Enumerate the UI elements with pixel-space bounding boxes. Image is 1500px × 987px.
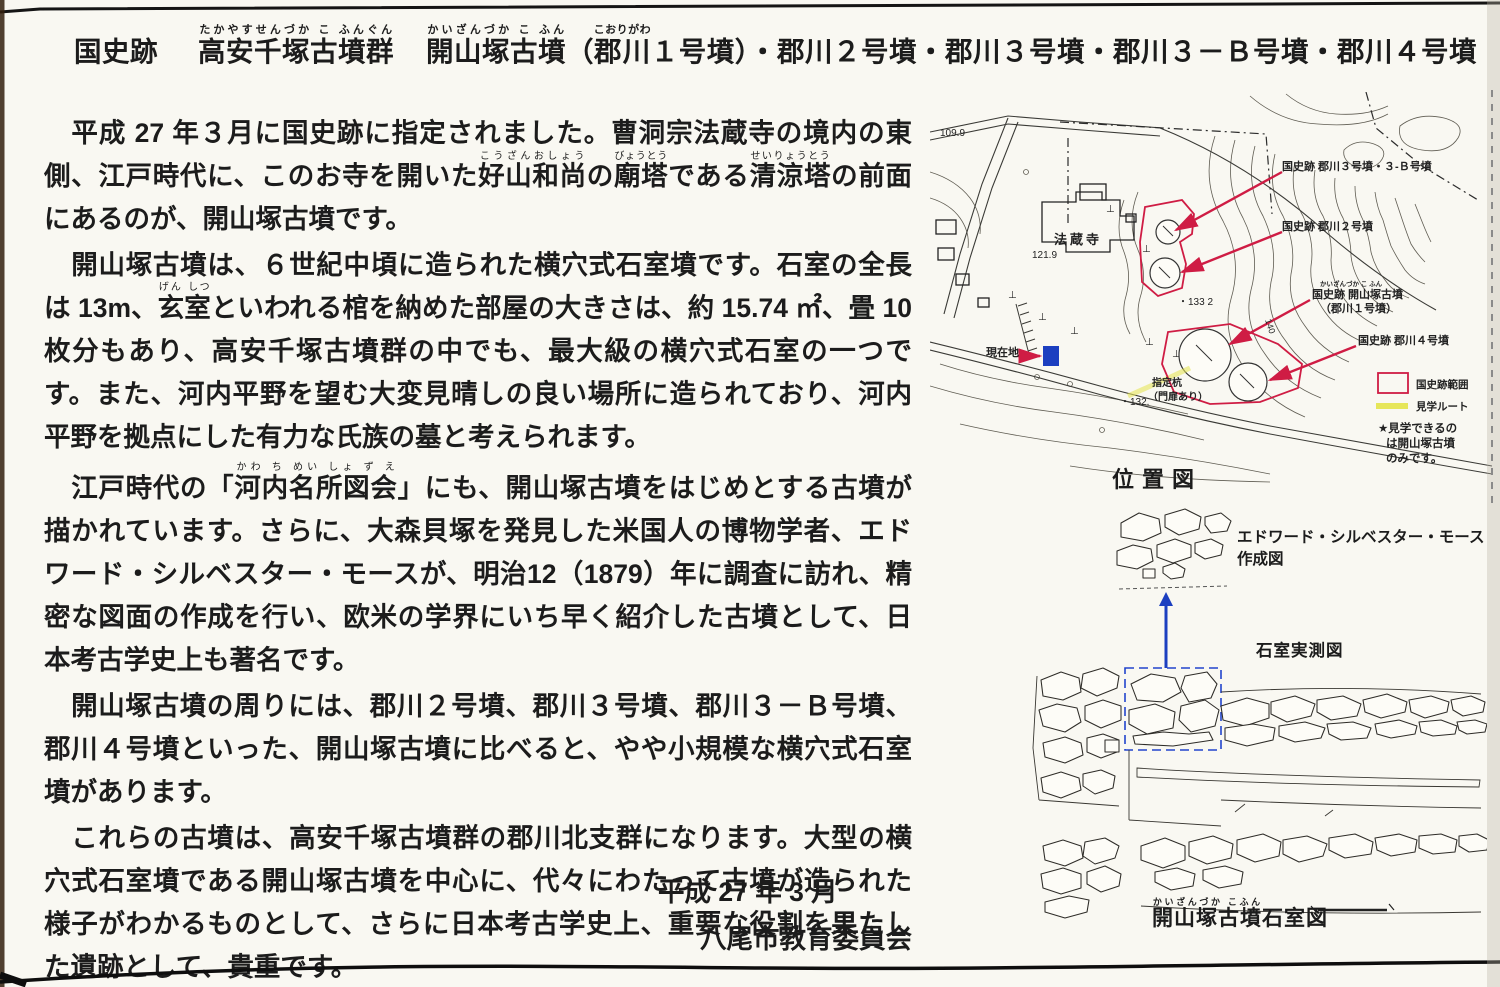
page-title: 国史跡 高安千塚古墳群たかやすせんづか こ ふんぐん 開山塚古墳かいざんづか こ…: [74, 24, 1477, 69]
svg-text:⊥: ⊥: [1038, 312, 1047, 323]
label-kofun-1b: （郡川１号墳）: [1320, 301, 1397, 315]
label-kofun-4: 国史跡 郡川４号墳: [1358, 333, 1449, 347]
map-legend: 国史跡範囲 見学ルート ★見学できるの は開山塚古墳 のみです。: [1376, 373, 1469, 465]
legend-note-line1: ★見学できるの: [1378, 421, 1457, 435]
svg-text:⊥: ⊥: [1070, 326, 1079, 337]
temple-label: 法蔵寺: [1054, 232, 1102, 247]
stone-chamber-figure: [1025, 588, 1487, 922]
ceiling-line: [1221, 688, 1481, 694]
right-wall-stones: [1221, 694, 1487, 746]
morse-drawing-figure: [1113, 503, 1235, 599]
map-caption: 位置図: [1112, 462, 1202, 494]
morse-label-line1: エドワード・シルベスター・モース: [1237, 527, 1485, 549]
label-kofun-3: 国史跡 郡川３号墳・３-Ｂ号墳: [1282, 159, 1432, 173]
information-board: 国史跡 高安千塚古墳群たかやすせんづか こ ふんぐん 開山塚古墳かいざんづか こ…: [0, 0, 1500, 987]
paragraph-3: 江戸時代の「河内名所図会かわ ち めい しょ ず え」にも、開山塚古墳をはじめと…: [44, 462, 912, 682]
elevation-109: 109.9: [940, 128, 965, 139]
legend-note-line3: のみです。: [1386, 452, 1442, 465]
elevation-121: 121.9: [1032, 250, 1057, 261]
floor-lines: [1129, 750, 1481, 826]
title-designation: 国史跡: [74, 29, 158, 69]
elevation-132: ・132.: [1120, 397, 1149, 408]
label-stake-gate: （門扉あり）: [1148, 390, 1208, 403]
frame-top-edge: [0, 3, 1500, 12]
morse-drawing-label: エドワード・シルベスター・モース 作成図: [1237, 527, 1485, 571]
title-site-group: 高安千塚古墳群たかやすせんづか こ ふんぐん: [198, 24, 394, 69]
map-buildings: [936, 184, 1136, 307]
svg-text:⊥: ⊥: [1142, 244, 1151, 255]
signature-date: 平成 27 年 3 月: [658, 870, 838, 909]
pillar-stones: [1129, 672, 1219, 746]
elevation-133: ・133 2: [1178, 297, 1213, 308]
paragraph-4: 開山塚古墳の周りには、郡川２号墳、郡川３号墳、郡川３－Ｂ号墳、郡川４号墳といった…: [44, 685, 912, 814]
paragraph-2: 開山塚古墳は、６世紀中頃に造られた横穴式石室墳です。石室の全長は 13m、玄室げ…: [44, 244, 912, 459]
bottom-wall-stones: [1141, 834, 1487, 890]
morse-stones: [1117, 509, 1231, 579]
kofun-mounds: [1150, 220, 1267, 401]
label-current-location: 現在地: [986, 345, 1019, 359]
current-location-marker: [1043, 346, 1059, 366]
slope-hatching: [1016, 303, 1037, 358]
label-kofun-2: 国史跡 郡川２号墳: [1282, 219, 1373, 233]
body-text: 平成 27 年３月に国史跡に指定されました。曹洞宗法蔵寺の境内の東側、江戸時代に…: [44, 112, 912, 987]
title-kofun-list: 開山塚古墳かいざんづか こ ふん（郡川こおりがわ１号墳）・郡川２号墳・郡川３号墳…: [426, 24, 1477, 69]
chamber-caption: 開山塚古墳かいざんづか こふん石室図: [1152, 897, 1328, 932]
label-kofun-1: 国史跡 開山塚古墳: [1312, 287, 1403, 301]
legend-area-swatch: [1378, 373, 1408, 393]
paragraph-1: 平成 27 年３月に国史跡に指定されました。曹洞宗法蔵寺の境内の東側、江戸時代に…: [44, 112, 912, 241]
location-map-figure: ⊥⊥⊥ ⊥⊥⊥ ⊥ 国史跡 郡川３号墳・３-Ｂ号墳 国史跡 郡川２号墳: [930, 92, 1492, 488]
legend-route-label: 見学ルート: [1415, 400, 1469, 413]
legend-note-line2: は開山塚古墳: [1386, 436, 1455, 450]
left-wall-stones: [1039, 668, 1121, 798]
lower-left-stones: [1041, 838, 1121, 918]
signature-organization: 八尾市教育委員会: [700, 917, 912, 956]
legend-note: ★見学できるの は開山塚古墳 のみです。: [1378, 421, 1457, 465]
svg-text:⊥: ⊥: [1106, 204, 1115, 215]
label-kofun-1-ruby: かいざんづか こ ふん: [1320, 279, 1383, 288]
label-stake: 指定杭: [1152, 376, 1182, 389]
legend-area-label: 国史跡範囲: [1416, 378, 1469, 391]
svg-text:⊥: ⊥: [1008, 290, 1017, 301]
detail-link-arrow: [1159, 592, 1173, 668]
svg-text:⊥: ⊥: [1145, 337, 1154, 348]
morse-label-line2: 作成図: [1237, 549, 1485, 571]
frame-bottom-left-corner: [0, 975, 26, 984]
